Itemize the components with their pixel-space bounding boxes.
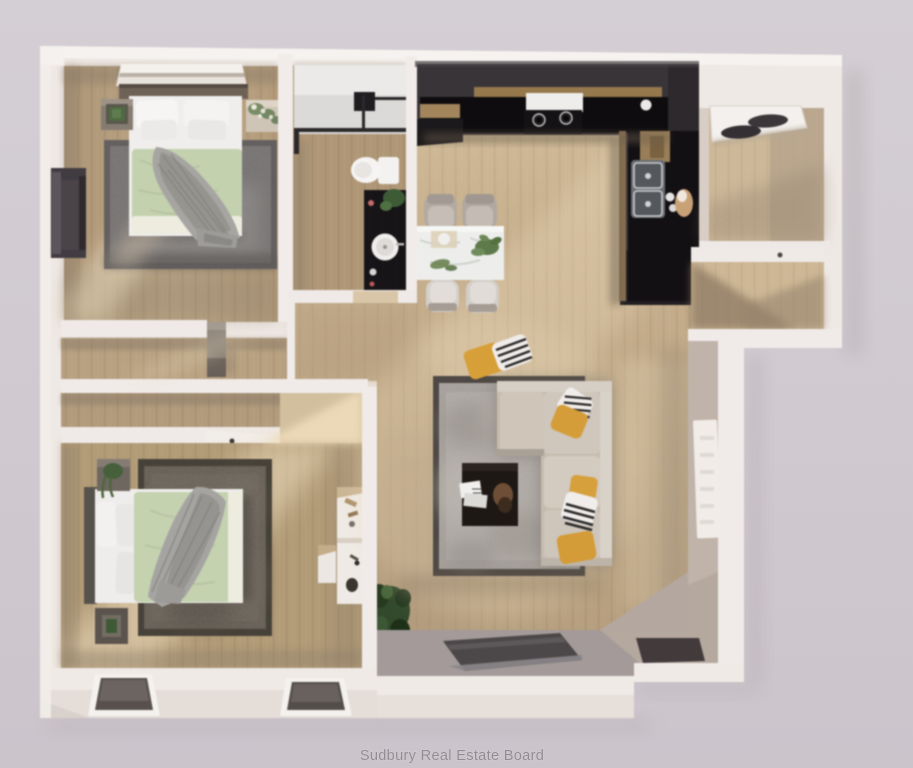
svg-text:Sudbury Real Estate Board: Sudbury Real Estate Board: [360, 748, 544, 764]
